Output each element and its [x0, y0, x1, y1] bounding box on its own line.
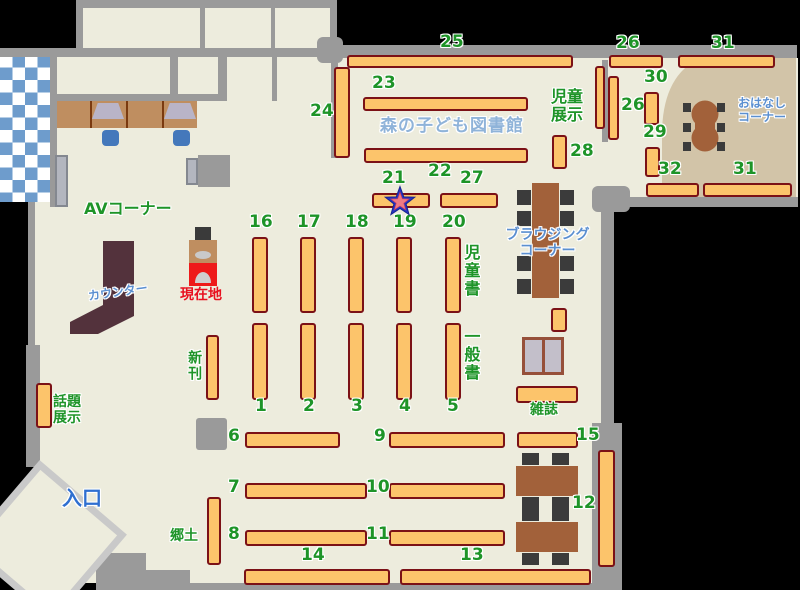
- shelf-14: [244, 569, 390, 585]
- shelf-number-26: 26: [621, 97, 645, 114]
- shelf-12: [598, 450, 615, 567]
- shelf-number-16: 16: [249, 214, 273, 231]
- shelf-6: [245, 432, 340, 448]
- shelf-26: [608, 76, 619, 140]
- shelf-32: [646, 183, 699, 197]
- magazines-label: 雑誌: [530, 402, 558, 418]
- chair: [717, 103, 725, 112]
- chair: [683, 123, 691, 132]
- stairs-checker-area: [0, 55, 50, 202]
- shelf-number-11: 11: [366, 526, 390, 543]
- shelf-number-15: 15: [576, 427, 600, 444]
- shelf: [207, 497, 221, 565]
- shelf-number-27: 27: [460, 170, 484, 187]
- chair: [517, 279, 531, 294]
- wall: [200, 8, 205, 48]
- chair: [683, 142, 691, 151]
- shelf-number-30: 30: [644, 69, 668, 86]
- room-top-2: [205, 8, 271, 48]
- chair: [517, 211, 531, 226]
- magazine-rack: [522, 337, 564, 375]
- general-books-label: 一般書: [461, 328, 479, 382]
- shelf-number-17: 17: [297, 214, 321, 231]
- shelf-number-18: 18: [345, 214, 369, 231]
- shelf-1: [252, 323, 268, 400]
- chair: [552, 453, 569, 465]
- wall: [272, 57, 277, 101]
- shelf-number-7: 7: [228, 479, 240, 496]
- wall: [198, 155, 230, 187]
- children-display-label: 児童 展示: [551, 88, 583, 125]
- shelf-2: [300, 323, 316, 400]
- shelf-number-4: 4: [399, 398, 411, 415]
- shelf-number-5: 5: [447, 398, 459, 415]
- shelf-number-6: 6: [228, 428, 240, 445]
- shelf-31: [678, 55, 775, 68]
- shelf-number-10: 10: [366, 479, 390, 496]
- chair: [717, 142, 725, 151]
- browsing-corner-label: ブラウジング コーナー: [505, 227, 590, 259]
- shelf-13: [400, 569, 591, 585]
- shelf-number-23: 23: [372, 75, 396, 92]
- shelf-4: [396, 323, 412, 400]
- chair: [552, 509, 569, 521]
- shelf-17: [300, 237, 316, 313]
- desk-divider: [90, 101, 92, 128]
- shelf-28: [552, 135, 567, 169]
- locker: [55, 155, 68, 207]
- chair: [173, 130, 190, 146]
- shelf-number-31: 31: [711, 35, 735, 52]
- topic-display-label: 話題 展示: [53, 394, 81, 426]
- chair: [517, 190, 531, 205]
- kiosk-top: [195, 227, 211, 241]
- shelf-9: [389, 432, 505, 448]
- shelf-number-9: 9: [374, 428, 386, 445]
- entrance-label: 入口: [62, 487, 102, 510]
- library-title: 森の子ども図書館: [380, 117, 524, 137]
- shelf-number-8: 8: [228, 526, 240, 543]
- shelf-31: [703, 183, 792, 197]
- new-books-label: 新刊: [186, 350, 202, 382]
- chair: [522, 497, 539, 509]
- shelf: [516, 386, 578, 403]
- shelf-number-22: 22: [428, 163, 452, 180]
- magazine-rack-divider: [542, 340, 545, 372]
- shelf-7: [245, 483, 367, 499]
- children-books-label: 児童書: [461, 244, 479, 298]
- chair: [717, 123, 725, 132]
- chair: [522, 453, 539, 465]
- reading-table: [516, 522, 578, 552]
- kiosk-body: [189, 240, 217, 264]
- desk-divider: [126, 101, 128, 128]
- av-corner-label: AVコーナー: [84, 200, 172, 218]
- shelf-15: [517, 432, 578, 448]
- chair: [560, 211, 574, 226]
- wall: [601, 207, 614, 427]
- kiosk-dome: [195, 272, 211, 283]
- shelf-23: [363, 97, 528, 111]
- chair: [560, 279, 574, 294]
- shelf-30: [644, 92, 659, 125]
- entrance-area: [0, 430, 185, 590]
- shelf-3: [348, 323, 364, 400]
- chair: [552, 553, 569, 565]
- shelf-number-1: 1: [255, 398, 267, 415]
- shelf-number-20: 20: [442, 214, 466, 231]
- shelf-16: [252, 237, 268, 313]
- chair: [560, 190, 574, 205]
- current-location-star: [383, 185, 417, 219]
- locker: [186, 158, 198, 185]
- shelf-18: [348, 237, 364, 313]
- wall: [76, 0, 337, 8]
- shelf-11: [389, 530, 505, 546]
- shelf-19: [396, 237, 412, 313]
- chair: [552, 497, 569, 509]
- reading-table: [516, 466, 578, 496]
- shelf-number-2: 2: [303, 398, 315, 415]
- wall: [170, 57, 178, 94]
- local-history-label: 郷土: [170, 528, 198, 544]
- shelf: [206, 335, 219, 400]
- shelf-number-13: 13: [460, 547, 484, 564]
- wall: [50, 94, 227, 101]
- chair: [522, 509, 539, 521]
- chair: [522, 553, 539, 565]
- shelf: [551, 308, 567, 332]
- shelf-25: [347, 55, 573, 68]
- shelf-number-32: 32: [658, 161, 682, 178]
- shelf: [595, 66, 605, 129]
- room-top-1: [83, 8, 200, 48]
- chair: [102, 130, 119, 146]
- shelf-number-24: 24: [310, 103, 334, 120]
- shelf-number-28: 28: [570, 143, 594, 160]
- shelf-10: [389, 483, 505, 499]
- shelf-number-25: 25: [440, 34, 464, 51]
- shelf-24: [334, 67, 350, 158]
- shelf-27: [440, 193, 498, 208]
- desk-divider: [162, 101, 164, 128]
- shelf-number-12: 12: [572, 495, 596, 512]
- chair: [683, 103, 691, 112]
- kiosk-base: [189, 263, 217, 286]
- shelf: [36, 383, 52, 428]
- library-floor-map: 2524232221272826312630293231161718192012…: [0, 0, 800, 590]
- wall: [271, 8, 275, 48]
- shelf-number-26: 26: [616, 35, 640, 52]
- kiosk-screen: [195, 251, 211, 259]
- wall: [28, 202, 35, 345]
- shelf-number-29: 29: [643, 124, 667, 141]
- storytelling-corner-label: おはなし コーナー: [738, 97, 786, 125]
- current-location-label: 現在地: [180, 287, 222, 303]
- shelf-number-3: 3: [351, 398, 363, 415]
- shelf-number-14: 14: [301, 547, 325, 564]
- wall: [614, 197, 798, 207]
- shelf-number-31: 31: [733, 161, 757, 178]
- shelf-20: [445, 237, 461, 313]
- shelf-8: [245, 530, 367, 546]
- pillar: [196, 418, 227, 450]
- shelf-5: [445, 323, 461, 400]
